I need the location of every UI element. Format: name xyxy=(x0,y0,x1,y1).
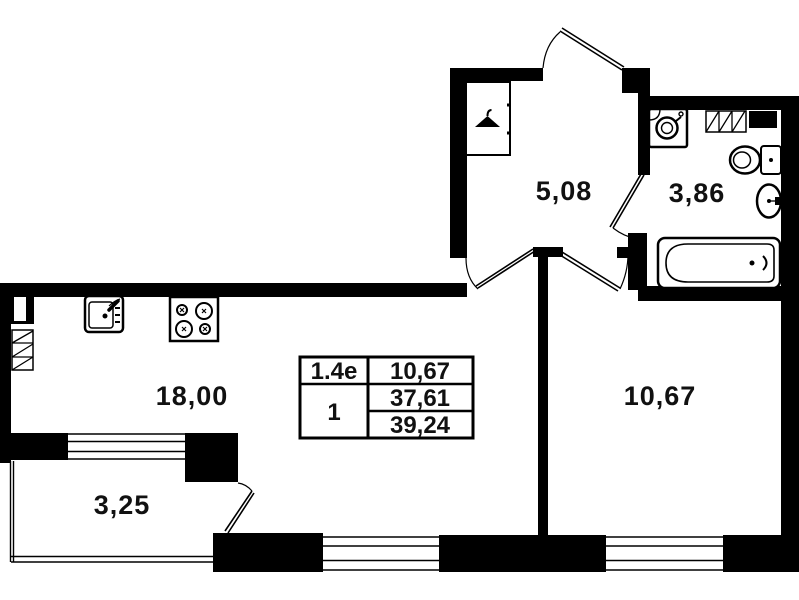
table-cell-area-3: 39,24 xyxy=(390,412,451,439)
table-cell-unit-type: 1.4е xyxy=(311,358,358,385)
vent-icon xyxy=(749,111,777,128)
bottom-window-bedroom xyxy=(606,537,723,570)
entry-door xyxy=(543,28,624,70)
bottom-window-living xyxy=(323,537,440,570)
washing-machine-icon xyxy=(649,109,687,147)
washbasin-icon xyxy=(757,185,782,218)
floor-plan-canvas: 18,00 5,08 3,86 10,67 3,25 1.4е 1 10,67 … xyxy=(0,0,799,600)
info-table: 1.4е 1 10,67 37,61 39,24 xyxy=(300,357,473,439)
room-label-living-kitchen: 18,00 xyxy=(156,381,229,411)
vent-shaft-icon xyxy=(11,294,34,370)
kitchen-sink-icon xyxy=(85,296,123,332)
table-cell-rooms-count: 1 xyxy=(327,399,340,426)
balcony-window xyxy=(68,434,185,459)
table-cell-area-2: 37,61 xyxy=(390,385,450,412)
bathroom-door xyxy=(610,174,644,239)
table-cell-area-1: 10,67 xyxy=(390,358,450,385)
room-label-hall: 5,08 xyxy=(536,176,593,206)
stove-icon xyxy=(170,297,218,341)
balcony-door xyxy=(225,483,254,533)
living-room-door xyxy=(466,249,535,289)
bathtub-icon xyxy=(658,238,780,288)
wardrobe xyxy=(466,82,511,155)
shelf-icon xyxy=(706,111,746,132)
floor-plan-drawing: 18,00 5,08 3,86 10,67 3,25 1.4е 1 10,67 … xyxy=(0,0,799,600)
toilet-icon xyxy=(730,146,781,174)
room-label-bathroom: 3,86 xyxy=(669,178,726,208)
room-label-bedroom: 10,67 xyxy=(624,381,697,411)
room-label-balcony: 3,25 xyxy=(94,490,151,520)
